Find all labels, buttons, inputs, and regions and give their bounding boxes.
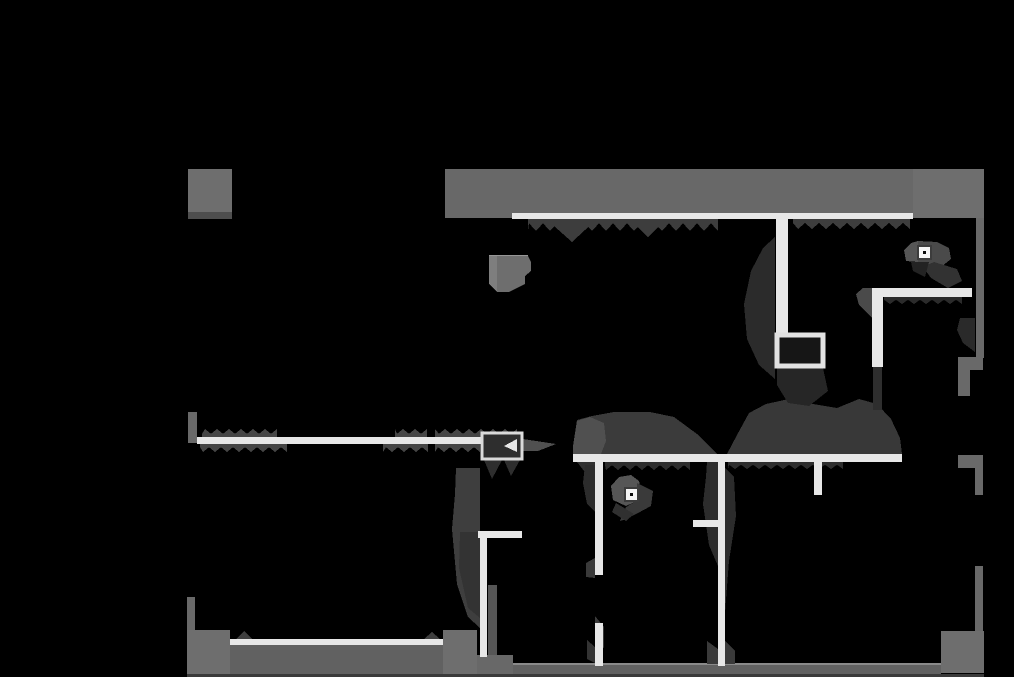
- wall-a-left-strip: [583, 465, 595, 512]
- wall-b-bottom-left-shade: [707, 641, 718, 664]
- left-room-object-left-edge: [489, 256, 497, 292]
- l-wall-horizontal: [872, 288, 972, 297]
- block-mid-bottom: [443, 630, 477, 675]
- top-wall-inner-line: [512, 213, 913, 219]
- corridor-left-wedge: [744, 237, 775, 379]
- scan-noise-top-right: [793, 219, 910, 229]
- top-wall-block-left: [445, 169, 512, 218]
- mid-left-band-core: [459, 532, 480, 618]
- right-mid-vertical: [975, 468, 983, 495]
- right-mid-horizontal: [958, 455, 983, 468]
- top-left-block: [188, 169, 232, 212]
- right-step-vertical: [958, 370, 970, 396]
- scan-noise-lw-below-3: [435, 444, 480, 452]
- wall-a-lower: [595, 623, 603, 666]
- wall-a-gap-top-shade: [586, 558, 595, 578]
- bottom-left-wall-band: [230, 645, 443, 675]
- bottom-line-tri-1: [236, 631, 252, 639]
- left-room-wall: [197, 437, 523, 444]
- bottom-left-wall-line: [230, 639, 443, 645]
- marker-square-2-icon-dot: [923, 251, 926, 254]
- closet-stub-wall: [693, 520, 718, 527]
- central-wedge-left-light: [573, 417, 606, 454]
- floorplan-svg: [0, 0, 1014, 677]
- scan-noise-lroom-below: [884, 297, 962, 304]
- marker-2-blob-light: [904, 241, 918, 262]
- marker-2-blob-dark: [923, 262, 962, 288]
- marker-square-1-icon-dot: [630, 493, 633, 496]
- scan-noise-lw-above-1: [202, 429, 277, 437]
- right-wall-lower: [975, 566, 983, 631]
- left-stub-lower: [187, 597, 195, 630]
- wall-b-long: [718, 462, 725, 666]
- mid-left-l-vertical: [480, 531, 487, 657]
- top-wall-band: [512, 169, 913, 214]
- wall-b-right-strip: [725, 468, 736, 613]
- shaft-box: [777, 335, 823, 366]
- wall-a-upper: [595, 462, 603, 575]
- scan-noise-lw-above-2: [395, 429, 427, 437]
- corridor-wall: [776, 219, 788, 336]
- bottom-line-tri-2: [424, 632, 440, 639]
- step-mid-bottom: [477, 655, 513, 675]
- top-dip-wedge-1: [545, 218, 598, 242]
- tri-below-doorbox-left: [484, 460, 502, 479]
- wedge-right-of-doorbox: [523, 439, 556, 451]
- bottom-left-block: [187, 630, 230, 675]
- scan-noise-cw-below-2: [728, 462, 843, 469]
- l-corner-wedge: [856, 288, 872, 318]
- right-step-horizontal: [958, 357, 983, 370]
- corner-block-bottom-right: [941, 631, 984, 673]
- tri-below-doorbox-right: [504, 460, 520, 476]
- top-left-block-base: [188, 212, 232, 219]
- mid-left-gray-side: [488, 585, 497, 655]
- bottom-wall: [513, 665, 941, 675]
- l-wall-vertical: [872, 288, 883, 367]
- scan-noise-lw-below-1: [200, 444, 287, 452]
- marker-2-shadow: [911, 262, 929, 277]
- l-vertical-dark-extension: [873, 367, 882, 410]
- floorplan-map: [0, 0, 1014, 677]
- scan-noise-lw-below-2: [383, 444, 428, 452]
- top-right-block: [913, 169, 984, 218]
- wall-a-bottom-left-shade: [587, 640, 595, 663]
- t-stub-wall: [814, 462, 822, 495]
- wall-b-bottom-right-shade: [725, 641, 735, 664]
- right-wall-shadow: [957, 318, 975, 352]
- left-stub-middle: [188, 412, 197, 443]
- central-wall: [573, 454, 902, 462]
- scan-noise-cw-below-1: [605, 462, 690, 470]
- right-wall-upper: [976, 218, 984, 358]
- wall-b-left-strip: [703, 462, 718, 566]
